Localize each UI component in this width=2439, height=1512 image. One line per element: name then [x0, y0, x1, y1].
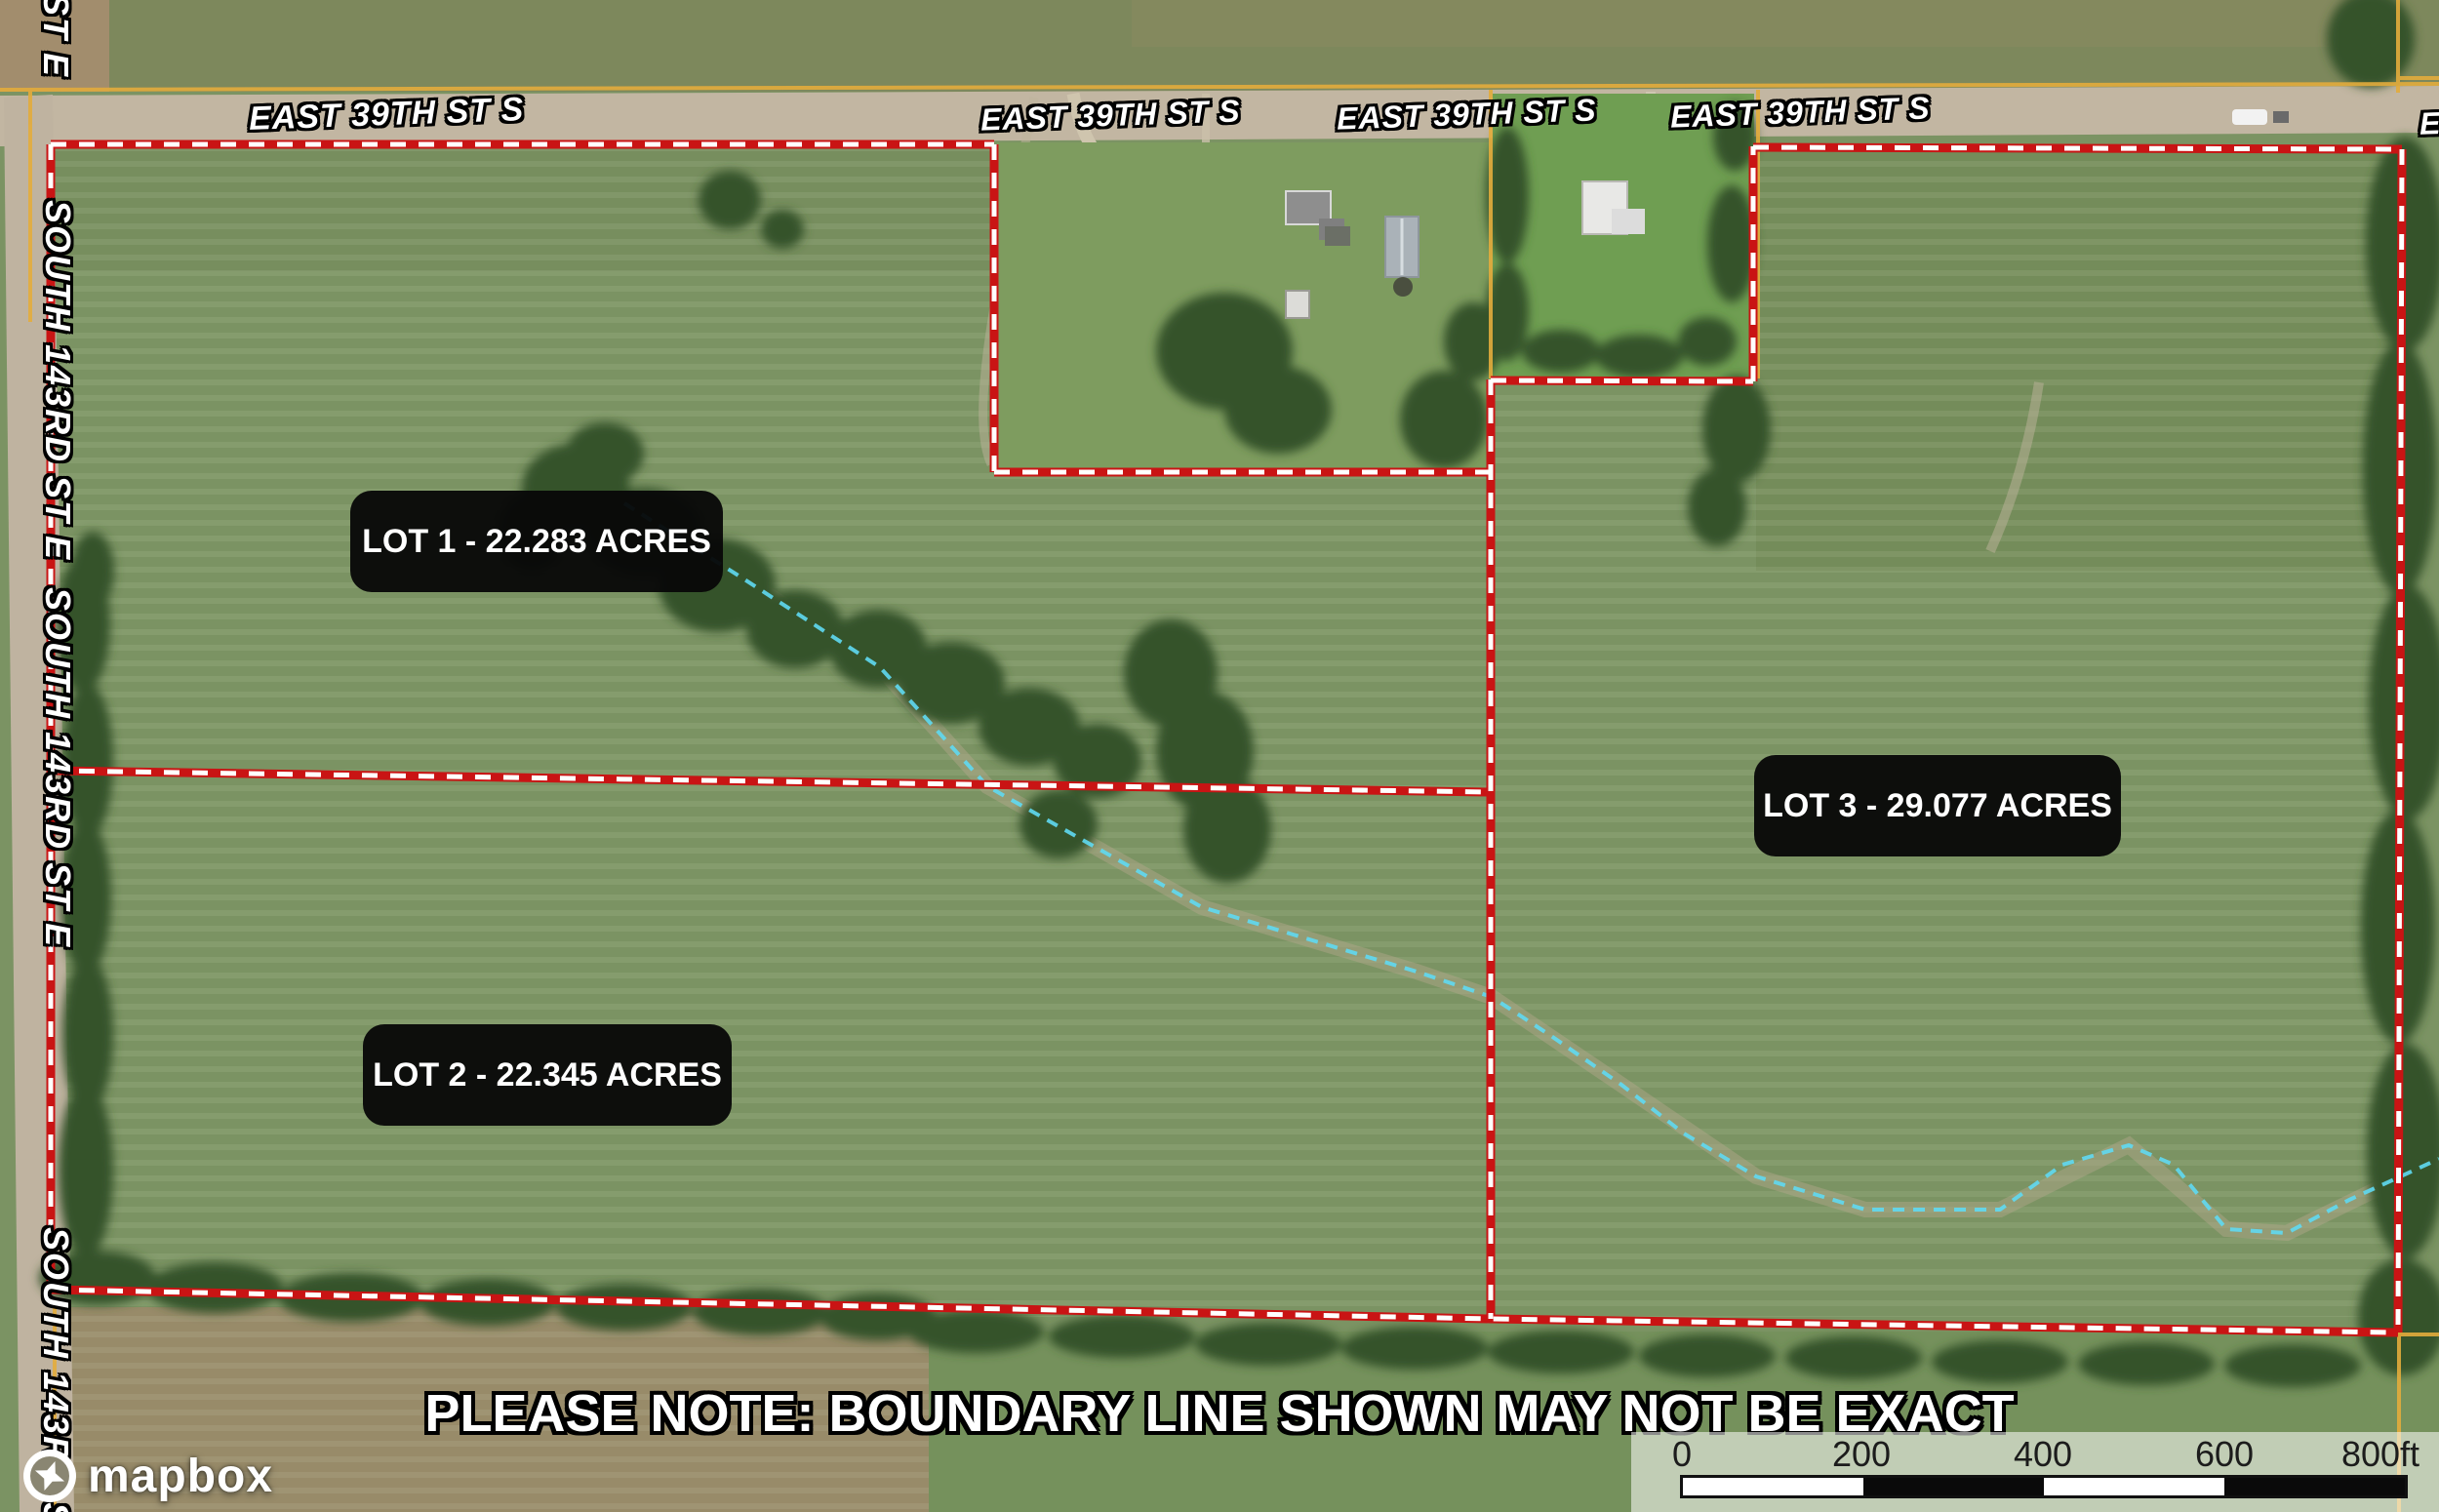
mapbox-logo-icon: [21, 1448, 78, 1504]
scale-bar-segments: [1680, 1475, 2408, 1498]
mapbox-attribution[interactable]: mapbox: [21, 1448, 273, 1504]
parcel-map: EAST 39TH ST S EAST 39TH ST S EAST 39TH …: [0, 0, 2439, 1512]
road-label-east-39th-5-partial: EA: [2419, 104, 2439, 142]
scale-bar: 0 200 400 600 800ft: [1631, 1432, 2439, 1512]
scale-tick-600: 600: [2195, 1434, 2254, 1475]
lot-2-label: LOT 2 - 22.345 ACRES: [363, 1024, 732, 1126]
lot-3-label: LOT 3 - 29.077 ACRES: [1754, 755, 2121, 856]
mapbox-wordmark: mapbox: [88, 1450, 273, 1503]
scale-tick-800ft: 800ft: [2341, 1434, 2419, 1475]
scale-tick-0: 0: [1672, 1434, 1692, 1475]
scale-tick-200: 200: [1832, 1434, 1891, 1475]
street-label-143rd-1: SOUTH 143RD ST E: [37, 200, 78, 561]
street-label-143rd-2: SOUTH 143RD ST E: [37, 587, 78, 948]
scale-tick-400: 400: [2014, 1434, 2072, 1475]
street-label-143rd-partial-top: D ST E: [35, 0, 76, 78]
lot-1-label: LOT 1 - 22.283 ACRES: [350, 491, 723, 592]
